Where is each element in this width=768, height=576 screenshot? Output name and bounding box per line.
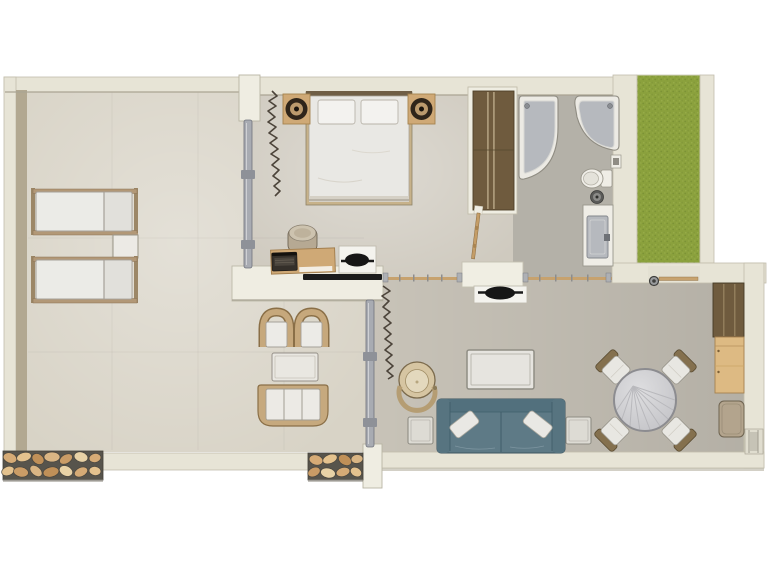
terrace-bedroom-pillar	[239, 75, 260, 121]
toilet	[581, 169, 612, 188]
wardrobe	[473, 91, 514, 210]
sofa	[437, 399, 565, 453]
tv-wall-block	[462, 262, 523, 287]
floor-plan-image	[0, 0, 768, 576]
speaker-nightstand-left	[283, 94, 310, 124]
terrace-living-pillar	[363, 444, 382, 488]
double-bed	[306, 91, 412, 205]
living-bottom-wall	[374, 452, 764, 468]
left-wall-inner-face	[16, 90, 27, 453]
grass-right-wall	[700, 75, 714, 263]
bench	[719, 401, 744, 437]
sideboard	[715, 337, 744, 393]
shower-faucet	[608, 104, 613, 109]
paper-holder	[611, 155, 621, 168]
sink-faucet	[604, 234, 610, 241]
pouf	[288, 225, 317, 252]
terrace-low-wall	[103, 453, 308, 470]
grass-strip	[637, 75, 700, 263]
wicker-loveseat	[258, 385, 328, 426]
grass-texture	[637, 75, 700, 263]
sun-lounger-2	[31, 256, 138, 303]
speaker-nightstand-right	[408, 94, 435, 124]
bottom-wall-shadow	[374, 468, 764, 471]
laptop	[272, 252, 298, 271]
tall-cabinet	[713, 283, 744, 337]
vanity-sink	[583, 205, 613, 266]
desk	[271, 248, 336, 274]
sun-lounger-1	[31, 188, 138, 235]
coffee-table	[467, 350, 534, 389]
side-table-left	[408, 417, 433, 444]
tv-bedroom	[339, 246, 376, 273]
pillow	[361, 100, 398, 124]
tub-faucet	[525, 104, 530, 109]
terrace-top-wall	[4, 77, 240, 92]
wicker-table	[272, 353, 318, 381]
tv-living	[474, 286, 527, 303]
stone-wall-right	[306, 452, 363, 482]
lounger-side-table	[113, 233, 138, 258]
pillow	[318, 100, 355, 124]
side-table-right	[566, 417, 591, 444]
stone-wall-left	[0, 450, 103, 482]
waste-bin	[591, 191, 604, 204]
right-wall-door	[745, 429, 763, 454]
left-wall	[4, 77, 16, 453]
partition-media-niche	[303, 274, 382, 280]
